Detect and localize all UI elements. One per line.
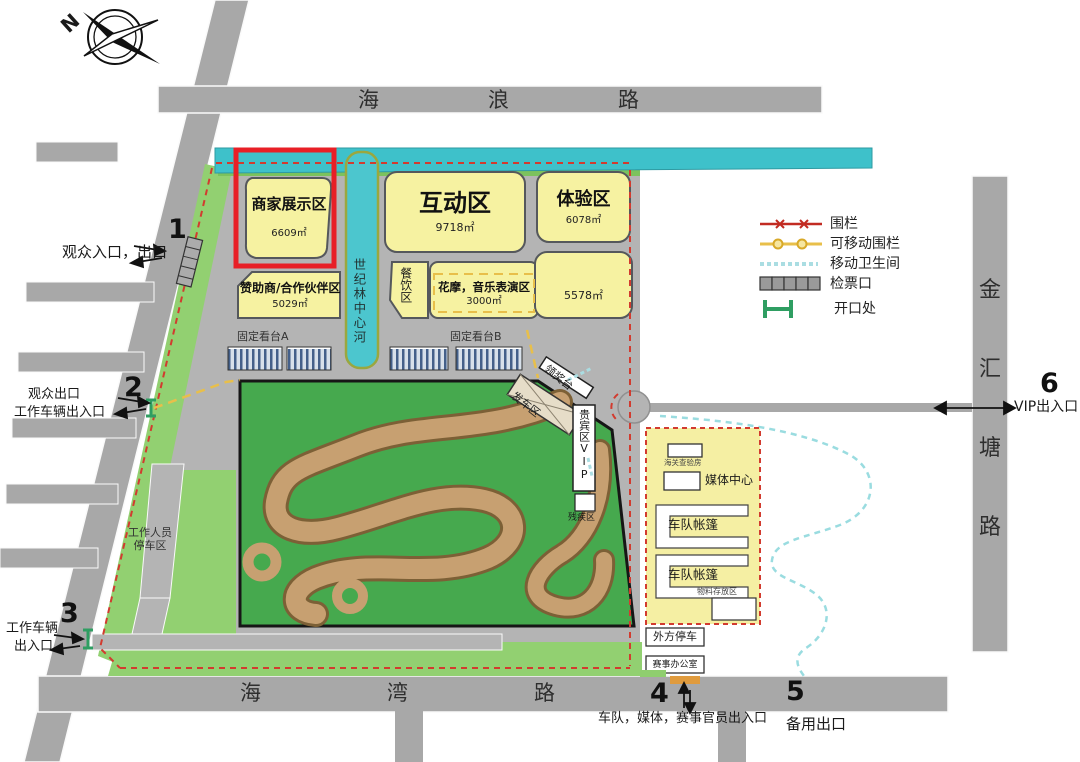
road-char: 海 <box>240 681 262 705</box>
entrance-3-number: 3 <box>60 598 79 629</box>
entrance-1-label: 观众入口，出口 <box>62 244 167 261</box>
road-char: 汇 <box>979 357 1002 382</box>
legend-toilet-label: 移动卫生间 <box>830 256 900 272</box>
zone-5578-area: 5578㎡ <box>535 290 632 303</box>
entrance-4-number: 4 <box>650 678 669 709</box>
zone-merchant <box>246 178 331 258</box>
gate4-opening <box>670 676 700 684</box>
legend-movable-fence-icon <box>760 240 822 249</box>
legend-symbols <box>760 220 822 318</box>
canal-name: 世纪林中心河 <box>351 258 365 368</box>
legend-ticket-label: 检票口 <box>830 276 872 292</box>
road-char: 湾 <box>387 681 409 705</box>
road-stub-south-1 <box>395 711 423 762</box>
zone-experience-name: 体验区 <box>537 190 630 211</box>
road-name-jinhuitang: 金 汇 塘 路 <box>976 278 1005 540</box>
entrance-5-label: 备用出口 <box>786 716 846 733</box>
customs-label: 海关查验房 <box>664 459 702 468</box>
entrance-6-label: VIP出入口 <box>1014 399 1078 415</box>
legend-fence-label: 围栏 <box>830 216 858 232</box>
entrance-6-number: 6 <box>1040 368 1059 399</box>
zone-experience-area: 6078㎡ <box>537 215 630 227</box>
staff-parking-label: 工作人员 停车区 <box>112 527 188 552</box>
zone-interactive-area: 9718㎡ <box>385 222 525 235</box>
vip-stand-label: 贵宾区VIP <box>577 409 590 489</box>
legend-ticket-icon <box>760 277 820 290</box>
entrance-4-label: 车队，媒体，赛事官员出入口 <box>598 712 767 727</box>
roundabout <box>618 391 650 423</box>
zone-5578 <box>535 252 632 318</box>
road-char: 浪 <box>488 88 510 112</box>
road-char: 塘 <box>979 436 1002 461</box>
legend-fence-icon <box>760 220 822 228</box>
grandstand-b-block-1 <box>390 347 448 370</box>
material-storage-label: 物料存放区 <box>697 587 737 596</box>
team-tent-1-label: 车队帐篷 <box>668 518 718 532</box>
grandstand-a-block-2 <box>287 347 331 370</box>
compass-rose <box>83 10 160 64</box>
road-name-haiwan: 海 湾 路 <box>240 681 556 705</box>
media-center-box <box>664 472 700 490</box>
zone-interactive-name: 互动区 <box>385 190 525 218</box>
entrance-2-label1: 观众出口 <box>28 388 80 403</box>
road-char: 海 <box>358 88 380 112</box>
grandstand-b-label: 固定看台B <box>450 331 502 344</box>
road-left-stubs <box>0 142 154 568</box>
road-char: 路 <box>979 515 1002 540</box>
customs-box <box>668 444 702 457</box>
grandstand-b-block-2 <box>456 347 522 370</box>
site-map: N 海 浪 路 海 湾 路 金 汇 塘 路 商家展示区 6609㎡ 互动区 97… <box>0 0 1080 762</box>
road-vip-connector <box>648 403 972 412</box>
entrance-5-number: 5 <box>786 676 805 707</box>
zone-performance-area: 3000㎡ <box>436 296 532 308</box>
zone-sponsor-name: 赞助商/合作伙伴区 <box>240 282 340 296</box>
road-char: 路 <box>618 88 640 112</box>
legend-opening-label: 开口处 <box>834 301 876 317</box>
legend-movable-fence-label: 可移动围栏 <box>830 236 900 252</box>
staff-parking-line2: 停车区 <box>112 540 188 553</box>
grandstand-a-label: 固定看台A <box>237 331 289 344</box>
road-name-hailang: 海 浪 路 <box>358 88 640 112</box>
zone-performance-name: 花摩，音乐表演区 <box>436 281 532 294</box>
disabled-area-label: 残疾区 <box>568 513 595 523</box>
disabled-area-box <box>575 494 595 511</box>
grandstand-a-block-1 <box>228 347 282 370</box>
zone-sponsor-area: 5029㎡ <box>240 299 340 311</box>
event-office-label: 赛事办公室 <box>646 660 704 670</box>
entrance-3-label1: 工作车辆 <box>6 622 58 637</box>
staff-parking-line1: 工作人员 <box>112 527 188 540</box>
legend-opening-icon <box>765 300 791 318</box>
road-char: 金 <box>979 278 1002 303</box>
team-tent-2-label: 车队帐篷 <box>668 568 718 582</box>
media-center-label: 媒体中心 <box>705 474 753 488</box>
gate4-green-strip <box>640 670 666 677</box>
foreign-parking-label: 外方停车 <box>646 631 704 644</box>
road-char: 路 <box>534 681 556 705</box>
entrance-2-label2: 工作车辆出入口 <box>14 406 105 421</box>
entrance-1-number: 1 <box>168 214 187 245</box>
entrance-3-label2: 出入口 <box>14 640 53 655</box>
zone-merchant-area: 6609㎡ <box>246 228 332 240</box>
entrance-2-number: 2 <box>124 372 143 403</box>
zone-dining-name: 餐饮区 <box>398 267 412 317</box>
map-graphics <box>0 0 1080 762</box>
zone-merchant-name: 商家展示区 <box>246 196 332 213</box>
material-storage-box <box>712 598 756 620</box>
